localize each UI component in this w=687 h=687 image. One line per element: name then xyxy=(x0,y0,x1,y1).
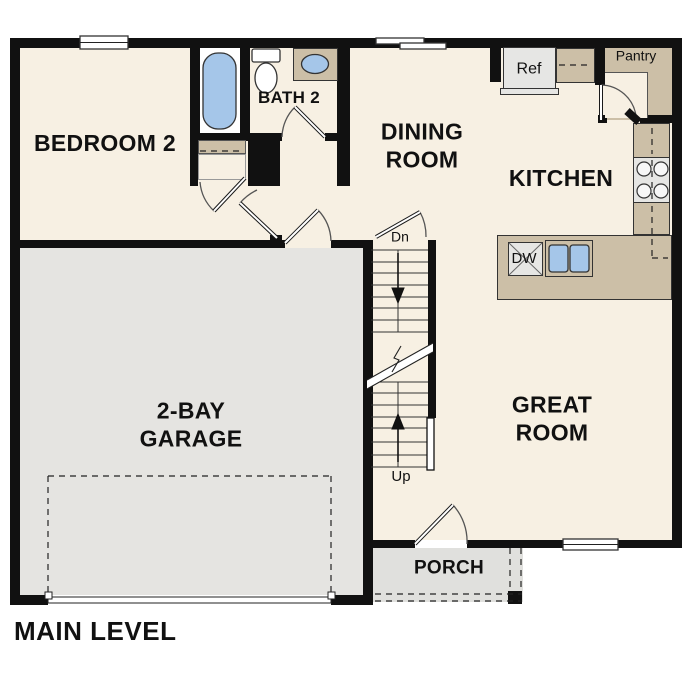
room-label-great-room: GREAT ROOM xyxy=(512,391,592,446)
closet-shelf xyxy=(198,140,246,154)
wall-ref-stub xyxy=(490,40,501,82)
wall-garage-bottom-left xyxy=(10,595,48,605)
closet-floor xyxy=(198,154,246,180)
stairs-label-dn: Dn xyxy=(391,229,409,246)
room-label-porch: PORCH xyxy=(414,558,484,581)
vanity xyxy=(293,48,338,81)
appliance-label-ref: Ref xyxy=(517,59,542,78)
wall-stairs-left xyxy=(363,240,373,605)
porch-post xyxy=(508,591,522,604)
wall-bedroom-tub xyxy=(190,43,200,140)
wall-front-b xyxy=(467,540,563,548)
wall-closet-left xyxy=(190,141,198,186)
refrigerator-door xyxy=(500,88,559,95)
wall-front-c xyxy=(618,540,682,548)
wall-bath-a xyxy=(250,133,282,141)
wall-dining-divider xyxy=(337,43,350,186)
room-label-kitchen: KITCHEN xyxy=(509,165,613,193)
stove xyxy=(633,157,670,203)
room-label-garage: 2-BAY GARAGE xyxy=(140,397,243,452)
pantry-interior xyxy=(605,72,648,118)
stairs-label-up: Up xyxy=(391,468,410,486)
wall-hall-block xyxy=(248,140,280,186)
wall-tub-right xyxy=(240,48,250,141)
counter-ref-side xyxy=(556,48,595,83)
wall-pantry-left xyxy=(595,40,605,85)
room-label-bedroom2: BEDROOM 2 xyxy=(34,130,176,158)
sink-counter xyxy=(545,240,593,277)
wall-hall-door-stub xyxy=(270,235,282,246)
room-label-dining: DINING ROOM xyxy=(381,118,463,173)
window-great-room-bottom xyxy=(563,539,618,550)
plan-title: MAIN LEVEL xyxy=(14,616,176,647)
tub-alcove-floor xyxy=(199,48,240,133)
wall-bedroom-garage xyxy=(10,240,285,248)
room-label-bath2: BATH 2 xyxy=(258,88,320,108)
appliance-label-dw: DW xyxy=(512,250,537,268)
wall-left xyxy=(10,38,20,605)
floor-plan-canvas: BEDROOM 2 BATH 2 DINING ROOM KITCHEN GRE… xyxy=(0,0,687,687)
wall-front-a xyxy=(363,540,415,548)
room-label-pantry: Pantry xyxy=(616,48,656,65)
wall-garage-bottom-right xyxy=(331,595,373,605)
wall-stairs-right xyxy=(428,240,436,418)
